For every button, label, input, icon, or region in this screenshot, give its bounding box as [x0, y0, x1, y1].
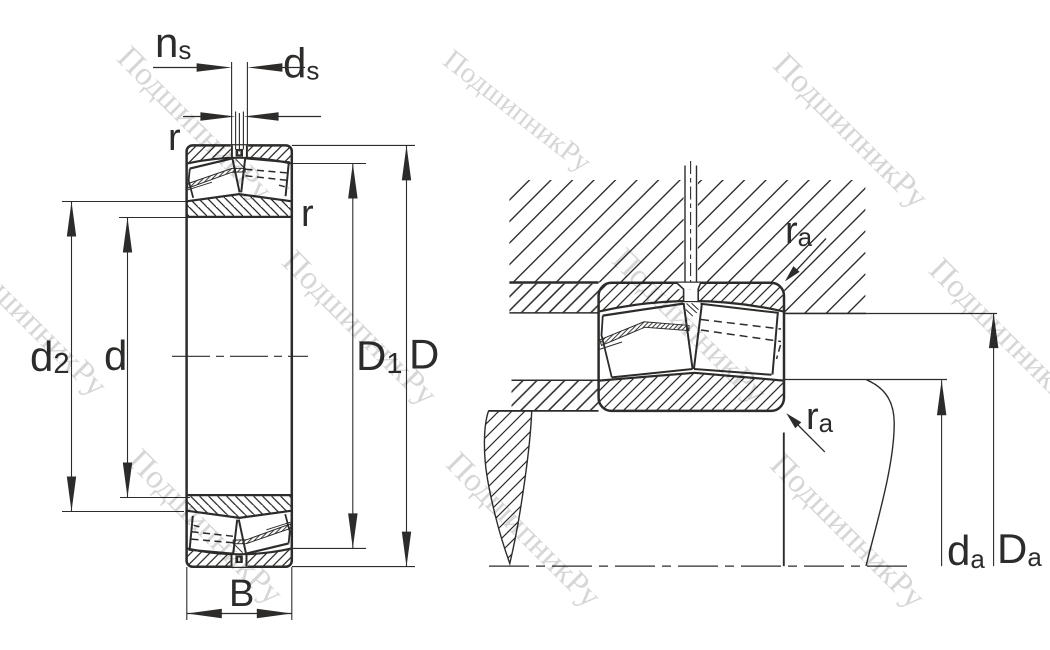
svg-text:ПодшипникРу: ПодшипникРу	[0, 235, 114, 404]
svg-text:ПодшипникРу: ПодшипникРу	[766, 47, 935, 216]
svg-text:ПодшипникРу: ПодшипникРу	[275, 244, 444, 413]
svg-text:ПодшипникРу: ПодшипникРу	[605, 242, 774, 411]
svg-text:ПодшипникРу: ПодшипникРу	[763, 447, 932, 616]
svg-text:ПодшипникРу: ПодшипникРу	[922, 252, 1050, 421]
svg-text:ПодшипникРу: ПодшипникРу	[110, 40, 279, 209]
svg-text:ПодшипникРу: ПодшипникРу	[437, 44, 598, 179]
svg-text:ПодшипникРу: ПодшипникРу	[121, 443, 290, 612]
svg-text:ПодшипникРу: ПодшипникРу	[439, 446, 608, 615]
